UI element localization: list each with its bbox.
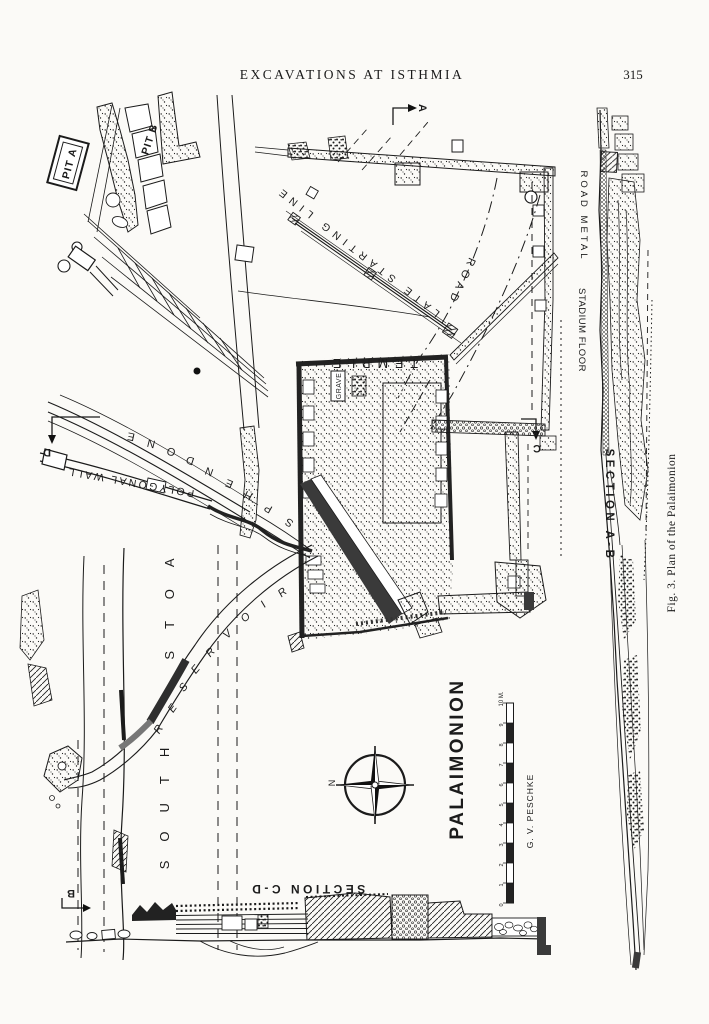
reservoir-letter: R [276, 586, 290, 600]
scale-tick-label: 2 [499, 863, 505, 866]
label-south: SOUTH [157, 729, 172, 870]
label-temple: TEMPLE [326, 356, 418, 370]
sphendone-letter: P [262, 501, 274, 515]
section-letter-b: B [67, 887, 75, 899]
sphendone-letter: O [165, 444, 177, 458]
label-stadium-floor: STADIUM FLOOR [576, 288, 587, 372]
pit-b-area: PIT B [139, 92, 200, 164]
figure-caption: Fig. 3. Plan of the Palaimonion [666, 454, 678, 613]
sphendone-letter: E [126, 429, 136, 442]
label-stoa: STOA [162, 536, 177, 659]
label-section-ab: SECTION A-B [603, 449, 615, 562]
scale-tick-label: 9 [499, 723, 505, 726]
section-marker-a: A [393, 104, 428, 125]
sphendone-letter: E [224, 476, 235, 490]
reservoir-letter: S [177, 681, 191, 695]
reservoir-letter: E [189, 662, 203, 676]
label-grave: GRAVE [336, 373, 343, 400]
reservoir-letter: R [204, 646, 218, 660]
section-marker-d: D [43, 417, 100, 458]
label-road: ROAD [445, 256, 478, 308]
compass-north-label: N [327, 780, 337, 787]
section-letter-a: A [416, 104, 428, 112]
page-number: 315 [623, 67, 643, 82]
temple-complex: GRAVE [288, 354, 453, 652]
section-marker-b: B [62, 887, 91, 912]
scale-tick-label: 6 [499, 783, 505, 786]
label-palaimonion: PALAIMONION [447, 678, 468, 839]
scale-tick-label: 3 [499, 843, 505, 846]
label-section-cd: SECTION C-D [249, 882, 366, 896]
label-polygonal-wall: POLYGONAL WALL [65, 465, 195, 499]
reservoir-letter: V [221, 627, 236, 642]
label-road-metal: ROAD METAL [578, 170, 589, 261]
sphendone-letter: D [185, 453, 196, 467]
label-credit: G. V. PESCHKE [525, 774, 535, 849]
point-marker [194, 368, 201, 375]
scale-tick-label: 1 [499, 883, 505, 886]
scale-tick-label: 4 [499, 823, 505, 826]
sphendone-letter: S [283, 515, 296, 529]
scale-end-label: 10 M. [499, 691, 505, 706]
section-cd-drawing [66, 893, 551, 956]
road-band [217, 95, 259, 430]
section-letter-d: D [43, 446, 51, 458]
east-wall [495, 168, 561, 618]
reservoir-letter: I [259, 599, 269, 610]
compass-rose: N [327, 746, 414, 824]
reservoir-channel [44, 545, 318, 808]
figure-plan-palaimonion: PIT A PIT B [0, 0, 709, 1024]
sphendone-letter: N [204, 464, 216, 478]
scale-tick-label: 0 [499, 903, 505, 906]
journal-page: PIT A PIT B [0, 0, 709, 1024]
scale-tick-label: 5 [499, 803, 505, 806]
sphendone-letter: N [146, 436, 157, 450]
scale-tick-label: 8 [499, 743, 505, 746]
page-header: EXCAVATIONS AT ISTHMIA [240, 67, 465, 82]
scale-bar: 0 1 2 3 4 5 6 7 8 9 10 M. G. V. PESCHKE [499, 691, 535, 906]
scale-tick-label: 7 [499, 763, 505, 766]
late-starting-line-feature [238, 187, 461, 343]
north-wall [255, 136, 555, 203]
